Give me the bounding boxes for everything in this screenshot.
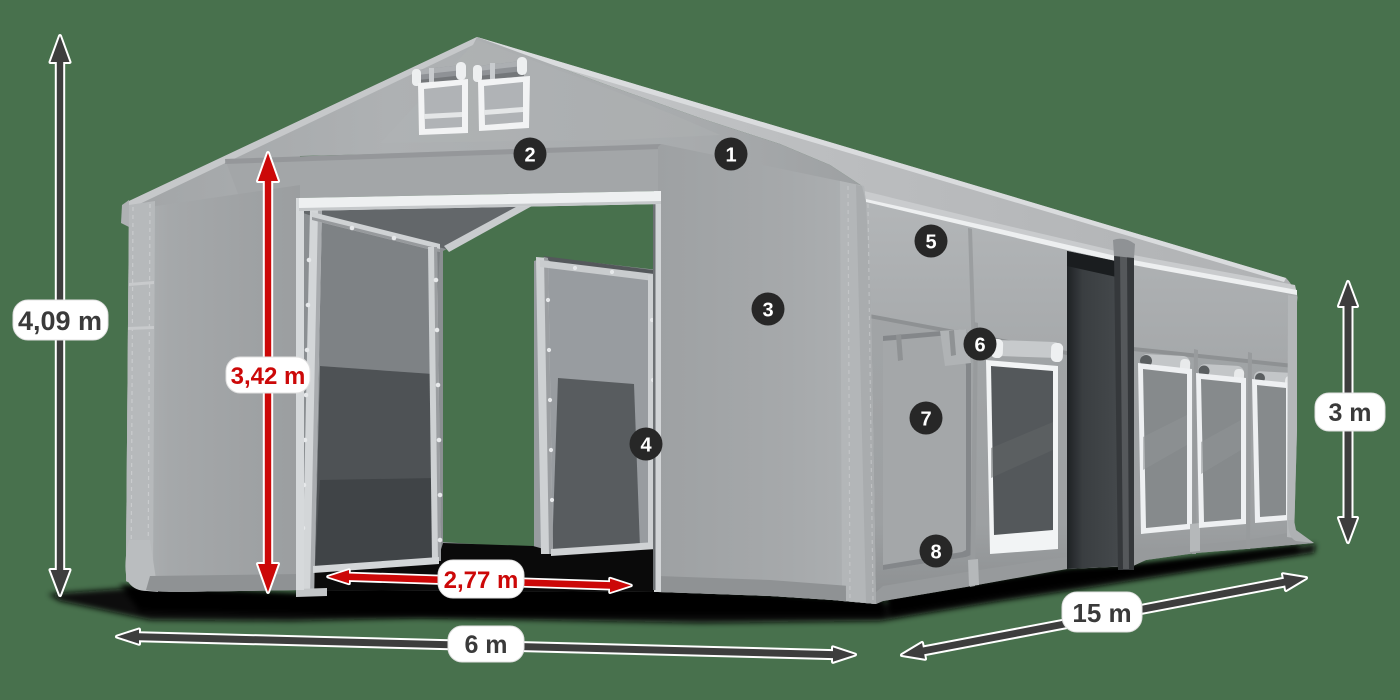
svg-text:6 m: 6 m <box>464 631 507 659</box>
svg-text:7: 7 <box>920 409 931 431</box>
svg-text:2: 2 <box>524 145 535 167</box>
svg-text:6: 6 <box>974 335 985 357</box>
svg-text:4: 4 <box>640 435 652 457</box>
svg-text:4,09 m: 4,09 m <box>18 306 102 336</box>
svg-text:3 m: 3 m <box>1328 399 1371 427</box>
svg-text:2,77 m: 2,77 m <box>444 567 519 594</box>
svg-text:8: 8 <box>930 542 941 564</box>
svg-text:1: 1 <box>725 145 736 167</box>
svg-text:3,42 m: 3,42 m <box>231 363 306 390</box>
svg-text:15 m: 15 m <box>1072 598 1131 628</box>
svg-text:5: 5 <box>925 232 936 254</box>
svg-text:3: 3 <box>762 300 773 322</box>
